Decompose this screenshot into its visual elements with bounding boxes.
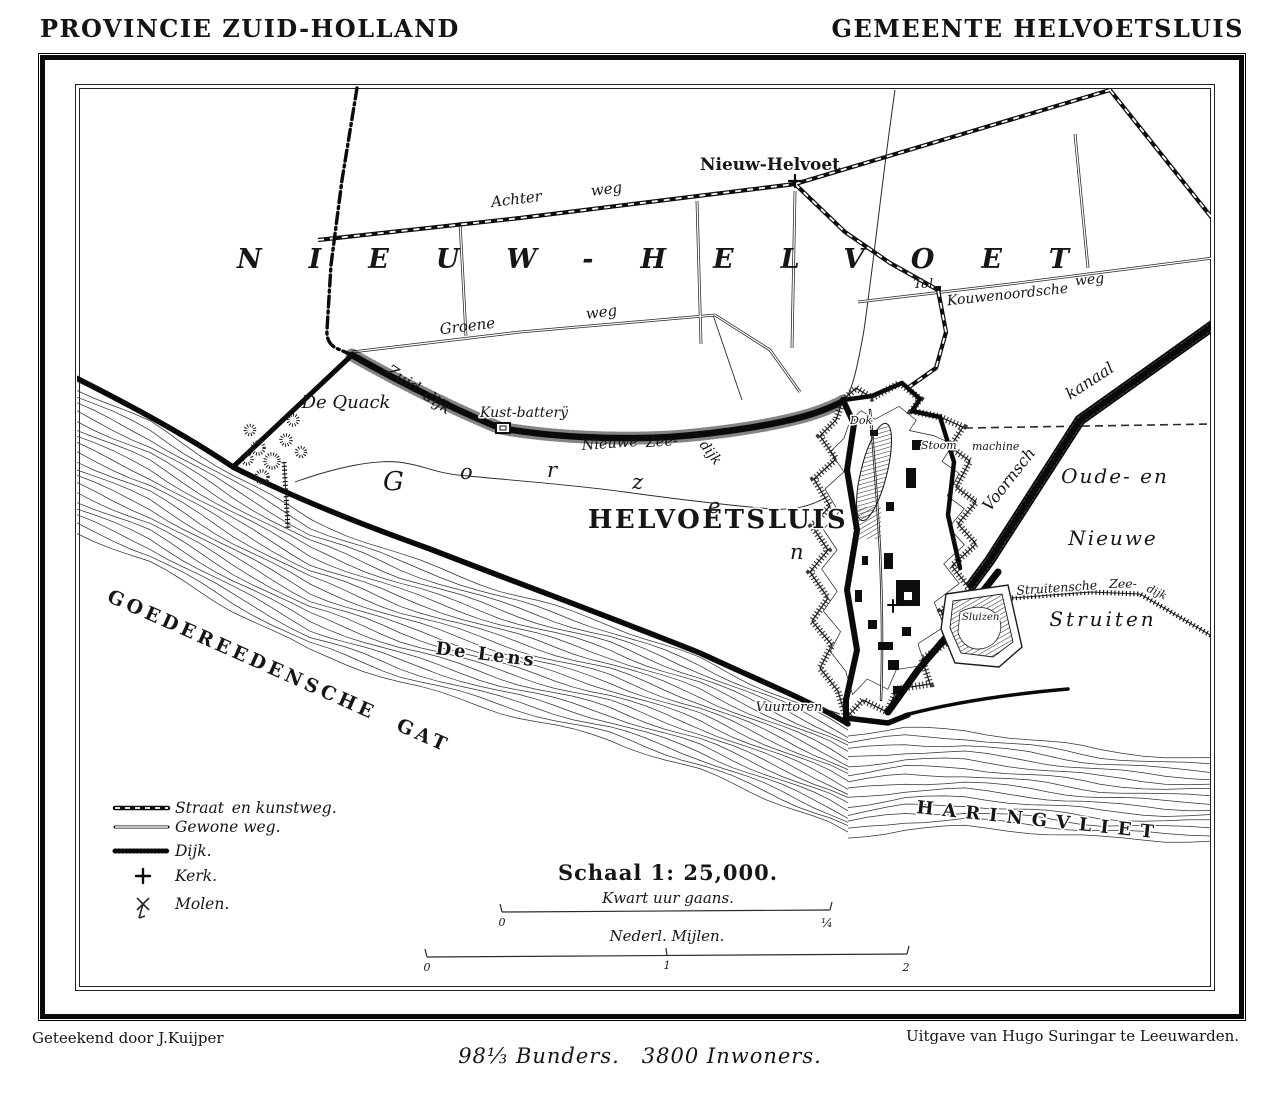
kouwenoordscheweg-label-2: weg [1074, 271, 1105, 290]
zeedijk-label-3: dijk [696, 438, 725, 469]
scale-bar-2 [425, 946, 909, 957]
kust-batterij-icon [496, 423, 510, 433]
achterweg-label-2: weg [590, 178, 623, 200]
achterweg-label-1: Achter [488, 187, 544, 211]
scale-bar2-label: Nederl. Mijlen. [609, 927, 725, 945]
legend-label-church: Kerk. [174, 867, 217, 885]
voornsch-kanaal [962, 326, 1212, 598]
scale-bar1-label: Kwart uur gaans. [601, 889, 734, 907]
map-sheet: PROVINCIE ZUID-HOLLAND GEMEENTE HELVOETS… [0, 0, 1280, 1096]
scale-bar1-end: ¼ [821, 916, 833, 930]
groeneweg-label-2: weg [585, 301, 618, 323]
struiten-area-label-2: Nieuwe [1067, 526, 1158, 550]
wave-line [848, 758, 1212, 785]
gorzen-letter-e: e [708, 494, 720, 518]
windmill-symbol [137, 898, 149, 918]
gorzen-letter-z: z [631, 470, 644, 494]
wave-line [848, 735, 1212, 764]
wave-line [848, 751, 1212, 780]
vuurtoren-label: Vuurtoren [756, 700, 823, 715]
municipal-boundary [327, 88, 357, 355]
water-label-goedereedensche-gat: GOEDEREEDENSCHE GAT [104, 585, 453, 757]
gorzen-letter-r: r [547, 458, 559, 482]
gorzen-letter-o: o [460, 460, 473, 484]
struiten-area-label-1: Oude- en [1061, 464, 1169, 488]
wave-line [76, 509, 848, 819]
wave-line [848, 727, 1212, 758]
map-labels: NIEUW-HELVOET Nieuw-Helvoet Achter weg G… [104, 155, 1169, 844]
sluizen-outwork [941, 585, 1022, 667]
map-canvas: NIEUW-HELVOET Nieuw-Helvoet Achter weg G… [0, 0, 1280, 1096]
municipal-boundary-east [965, 424, 1212, 428]
scale-bar2-start: 0 [424, 961, 431, 974]
struitensche-dike-label-2: Zee- [1108, 576, 1137, 591]
village-label: Nieuw-Helvoet [700, 155, 840, 175]
water-contour-lines [76, 390, 1212, 842]
wave-line [76, 436, 848, 766]
struitensche-dike-label-3: dijk [1145, 582, 1169, 603]
stoommachine-label-1: Stoom [921, 439, 957, 452]
zeedijk-label-2: Zee- [644, 433, 678, 451]
scale-bar1-start: 0 [499, 916, 506, 929]
legend-label-dike: Dijk. [174, 842, 212, 860]
wave-line [848, 745, 1212, 773]
municipality-statistics: 98⅓ Bunders. 3800 Inwoners. [0, 1044, 1280, 1068]
legend-label-windmill: Molen. [174, 895, 229, 913]
dok-label: Dok [849, 414, 872, 427]
wave-line [76, 402, 848, 742]
kust-batterij-label: Kust-batterÿ [479, 405, 569, 421]
shore-east [905, 689, 1068, 715]
struiten-area-label-3: Struiten [1049, 607, 1156, 631]
gorzen-letter-g: G [383, 467, 404, 497]
g-dbl-overlay [715, 315, 800, 392]
scale-title: Schaal 1: 25,000. [558, 860, 778, 885]
zeedijk-label-1: Nieuwe [580, 434, 638, 454]
scale-bar2-mid: 1 [664, 959, 671, 972]
scale-section: Schaal 1: 25,000. Kwart uur gaans. 0 ¼ N… [424, 860, 910, 974]
zuiddijk-label: Zuid dijk [382, 360, 455, 418]
water-label-de-lens: De Lens [434, 638, 537, 671]
publisher-credit: Uitgave van Hugo Suringar te Leeuwarden. [906, 1027, 1239, 1045]
legend-label-ordinary-road: Gewone weg. [175, 818, 281, 836]
sluizen-label: Sluizen [962, 612, 999, 623]
legend: Straat en kunstweg. Gewone weg. Dijk. Ke… [115, 799, 337, 918]
gorzen-letter-n: n [790, 540, 804, 564]
scale-bar2-end: 2 [902, 961, 910, 974]
legend-label-paved-road: Straat en kunstweg. [175, 799, 337, 817]
tol-label: Tol [913, 277, 933, 292]
tol-marker [936, 286, 941, 291]
de-quack-label: De Quack [301, 392, 391, 413]
church-symbol [136, 869, 150, 883]
region-name-label: NIEUW-HELVOET [236, 244, 1116, 275]
wave-line [848, 766, 1212, 790]
stoommachine-label-2: machine [972, 440, 1020, 453]
